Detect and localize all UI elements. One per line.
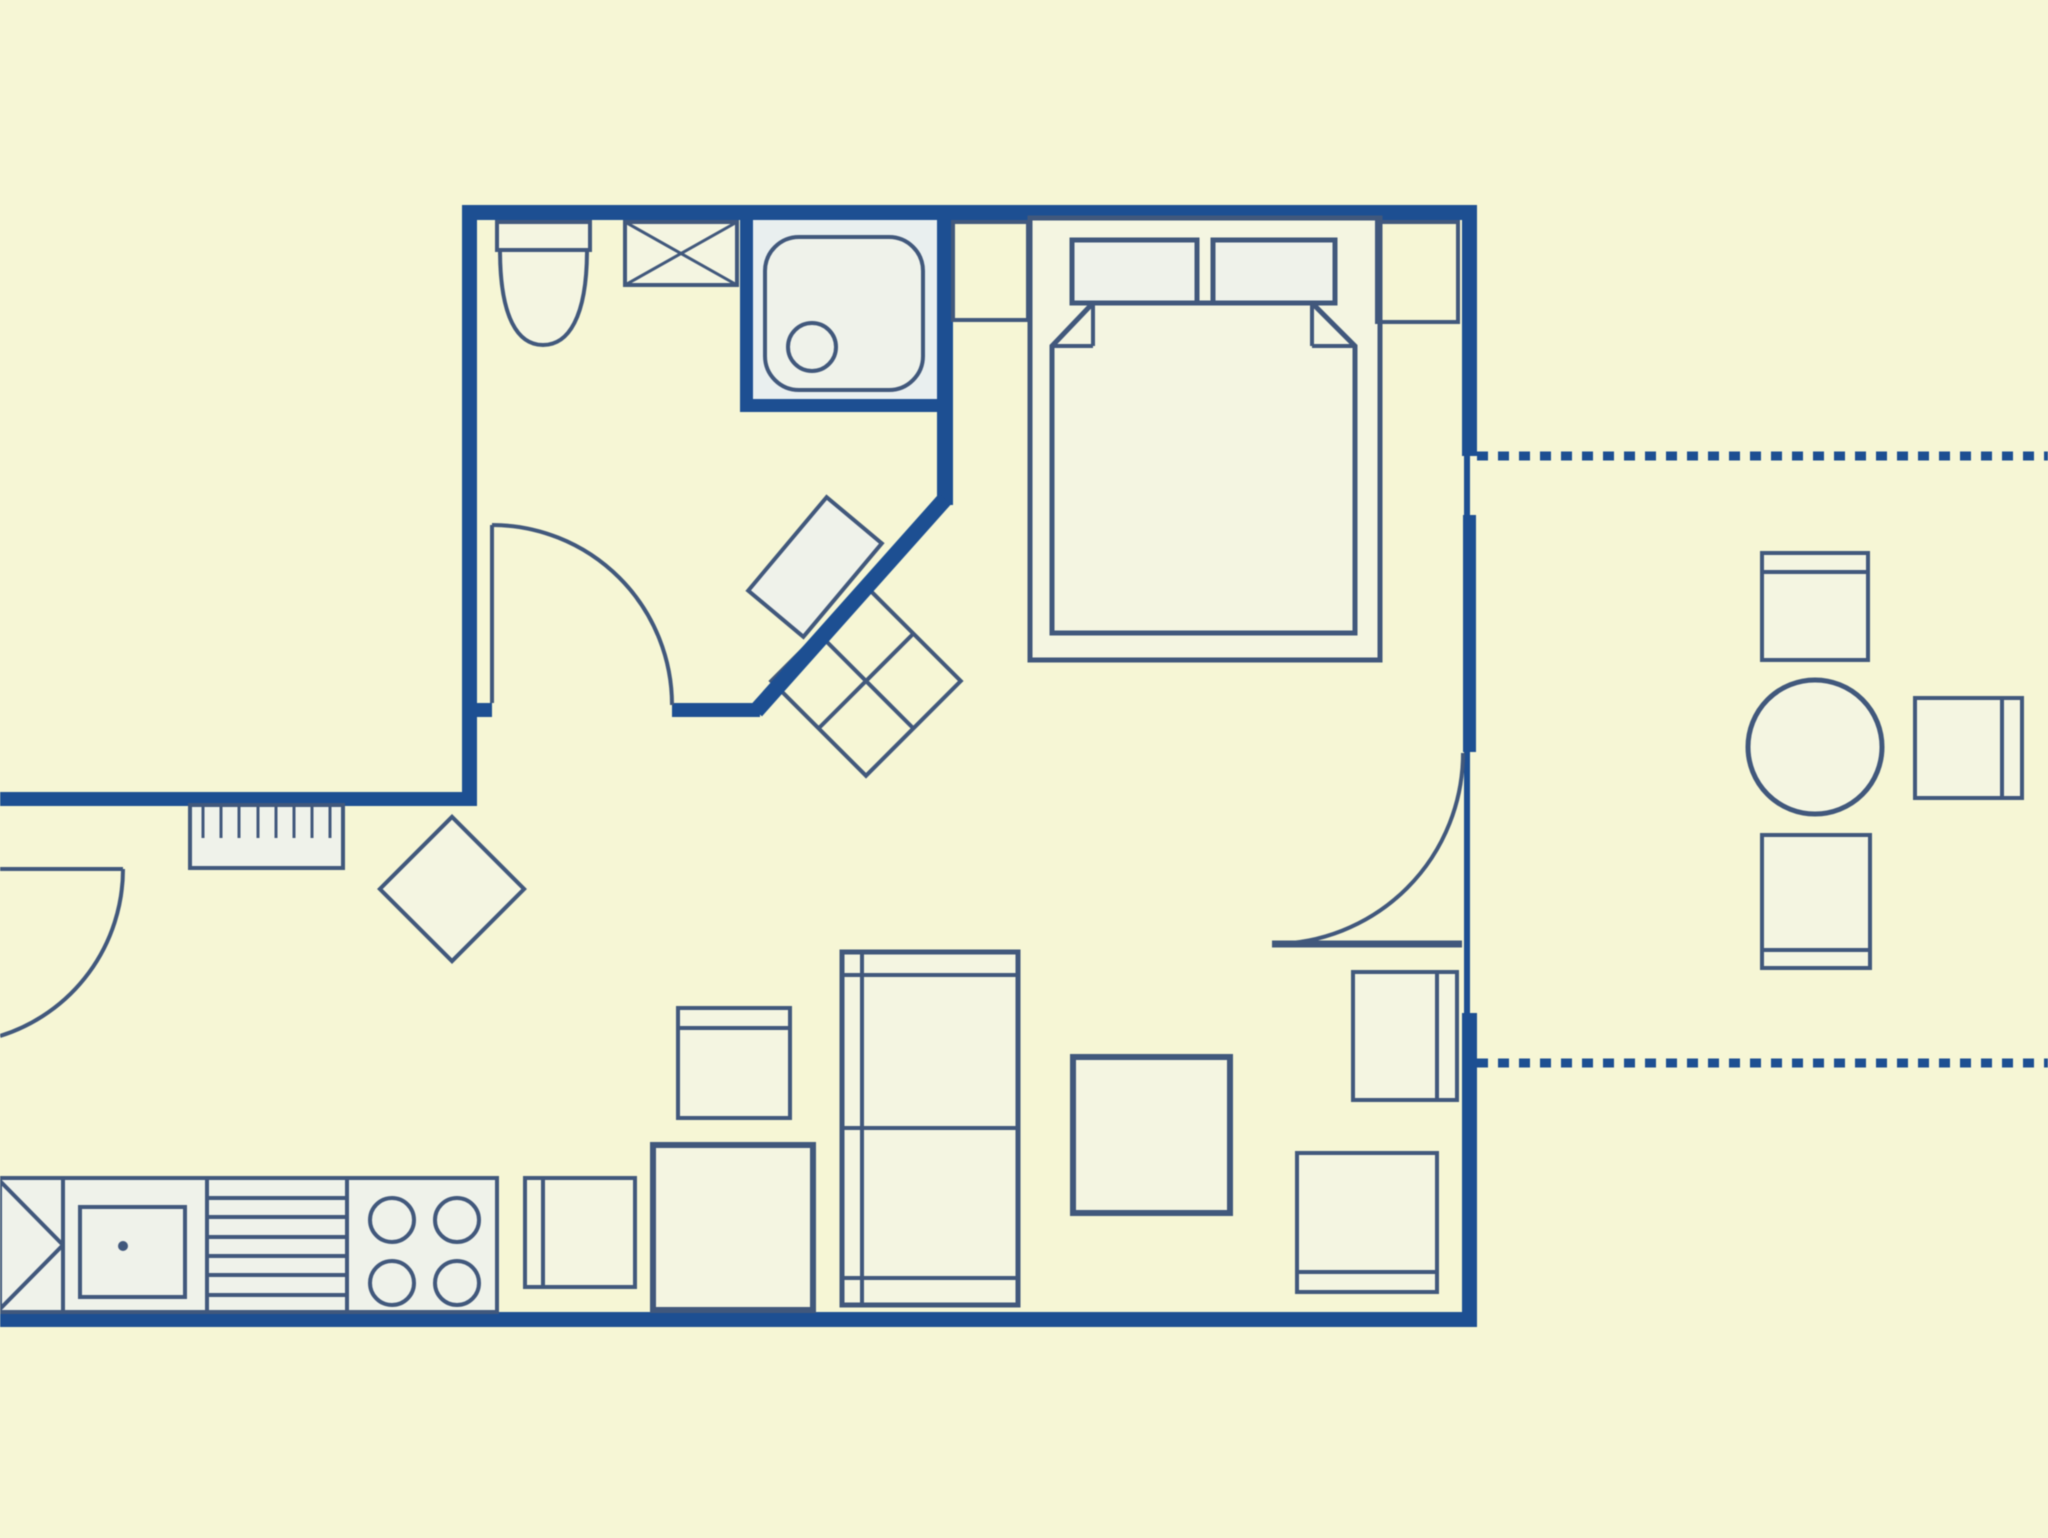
bathroom-right-wall xyxy=(937,205,953,505)
washbasin xyxy=(748,497,882,637)
nightstand-right xyxy=(1377,222,1458,322)
bottom-wall xyxy=(0,1312,1477,1327)
shower-wall-horizontal xyxy=(740,399,953,412)
kitchen-chair-top xyxy=(678,1008,790,1118)
right-wall-bottom xyxy=(1462,1013,1477,1327)
terrace-table xyxy=(1748,680,1882,814)
shower-wall-vertical xyxy=(740,220,753,412)
entry-door-arc xyxy=(0,869,123,1036)
right-wall-door-threshold xyxy=(1464,752,1470,1013)
radiator xyxy=(190,805,343,868)
bathroom-bottom-wall-right xyxy=(672,703,760,717)
terrace-chair-right xyxy=(1915,698,2022,798)
shower-tray xyxy=(765,237,923,390)
pillow-left xyxy=(1072,240,1197,303)
right-wall-top xyxy=(1462,205,1477,456)
toilet-cistern xyxy=(497,222,590,250)
living-table xyxy=(1073,1057,1230,1213)
bedroom-door-arc xyxy=(1272,753,1463,944)
stool xyxy=(380,817,524,961)
nightstand-left xyxy=(953,222,1028,320)
living-chair-right xyxy=(1353,972,1457,1100)
duvet xyxy=(1052,303,1355,633)
floor-plan xyxy=(0,0,2048,1538)
sink-tap-dot xyxy=(118,1241,128,1251)
bathroom-door-arc xyxy=(492,525,672,705)
right-wall-window-sill xyxy=(1464,455,1470,517)
floor-plan-page xyxy=(0,0,2048,1538)
right-wall-mid xyxy=(1463,515,1476,752)
terrace-chair-top xyxy=(1762,553,1868,660)
kitchen-table xyxy=(653,1145,813,1310)
bathroom-bottom-wall-left xyxy=(462,703,492,717)
toilet-bowl xyxy=(500,250,587,345)
pillow-right xyxy=(1213,240,1335,303)
